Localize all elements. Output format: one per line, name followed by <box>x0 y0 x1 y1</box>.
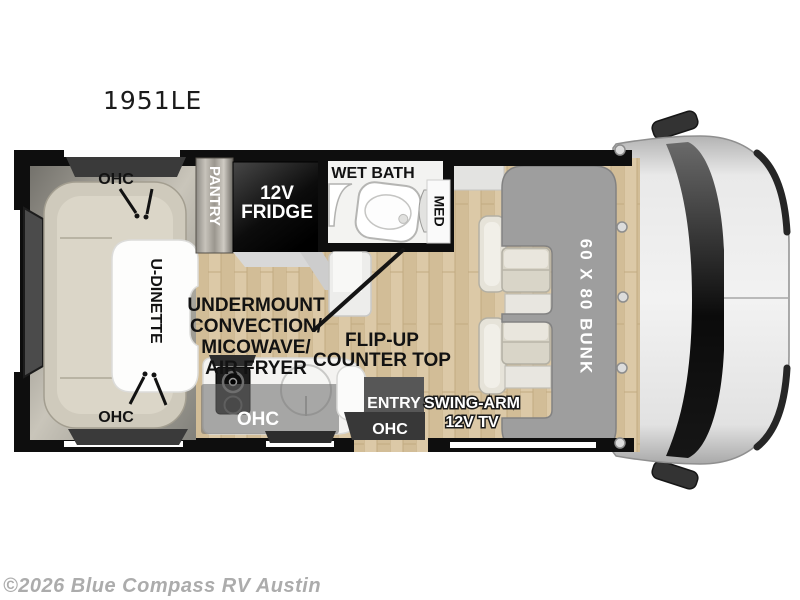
entry-label: ENTRY <box>367 395 421 412</box>
top-window-slit <box>64 150 180 157</box>
u-dinette-label: U-DINETTE <box>147 258 164 344</box>
rear-window <box>24 208 43 377</box>
leader-dot <box>152 373 157 378</box>
driver-seat <box>479 318 551 394</box>
toilet <box>354 180 422 243</box>
counter-note-line1: FLIP-UP <box>345 330 419 351</box>
appliance-note-line3: MICOWAVE/ <box>201 337 311 358</box>
clearance-light <box>618 292 628 302</box>
entry-ohc-label: OHC <box>372 421 408 438</box>
clearance-light <box>615 438 625 448</box>
fridge-label-line2: FRIDGE <box>241 202 313 223</box>
dinette-slide: U-DINETTE <box>24 157 198 445</box>
kitchen-ohc-label: OHC <box>237 409 280 430</box>
counter-note-line2: COUNTER TOP <box>313 350 451 371</box>
clearance-light <box>617 363 627 373</box>
tv-note-line1: SWING-ARM <box>424 395 520 412</box>
floorplan-model-title: 1951LE <box>103 86 202 115</box>
fridge-label-line1: 12V <box>260 183 294 204</box>
bath-step <box>333 252 362 292</box>
med-label: MED <box>431 195 447 226</box>
pantry-cabinet: PANTRY <box>196 158 233 253</box>
bottom-window-slit-3 <box>450 442 596 448</box>
ohc-top-label: OHC <box>98 171 134 188</box>
appliance-note-line2: CONVECTION/ <box>190 316 323 337</box>
rv-floorplan-page: 1951LE <box>0 0 800 600</box>
tv-note-line2: 12V TV <box>445 414 499 431</box>
leader-dot <box>143 372 148 377</box>
clearance-light <box>617 222 627 232</box>
appliance-note-line1: UNDERMOUNT <box>187 295 325 316</box>
bunk-label: 60 X 80 BUNK <box>577 239 596 375</box>
slide-awning-bar-bottom <box>68 429 188 445</box>
kitchen-awning-bar-bottom <box>265 431 336 443</box>
rear-window-slit <box>14 210 20 372</box>
front-wall-cabinet <box>452 164 504 190</box>
clearance-light <box>615 145 625 155</box>
flip-up-counter <box>337 366 365 420</box>
pantry-label: PANTRY <box>206 166 223 226</box>
appliance-note-line4: AIR FRYER <box>205 358 307 379</box>
wet-bath-label: WET BATH <box>331 165 414 182</box>
leader-dot <box>135 214 140 219</box>
leader-dot <box>144 215 149 220</box>
ohc-bottom-label: OHC <box>98 409 134 426</box>
dealer-watermark: ©2026 Blue Compass RV Austin <box>3 575 321 598</box>
entry-area: ENTRY OHC <box>337 366 425 440</box>
